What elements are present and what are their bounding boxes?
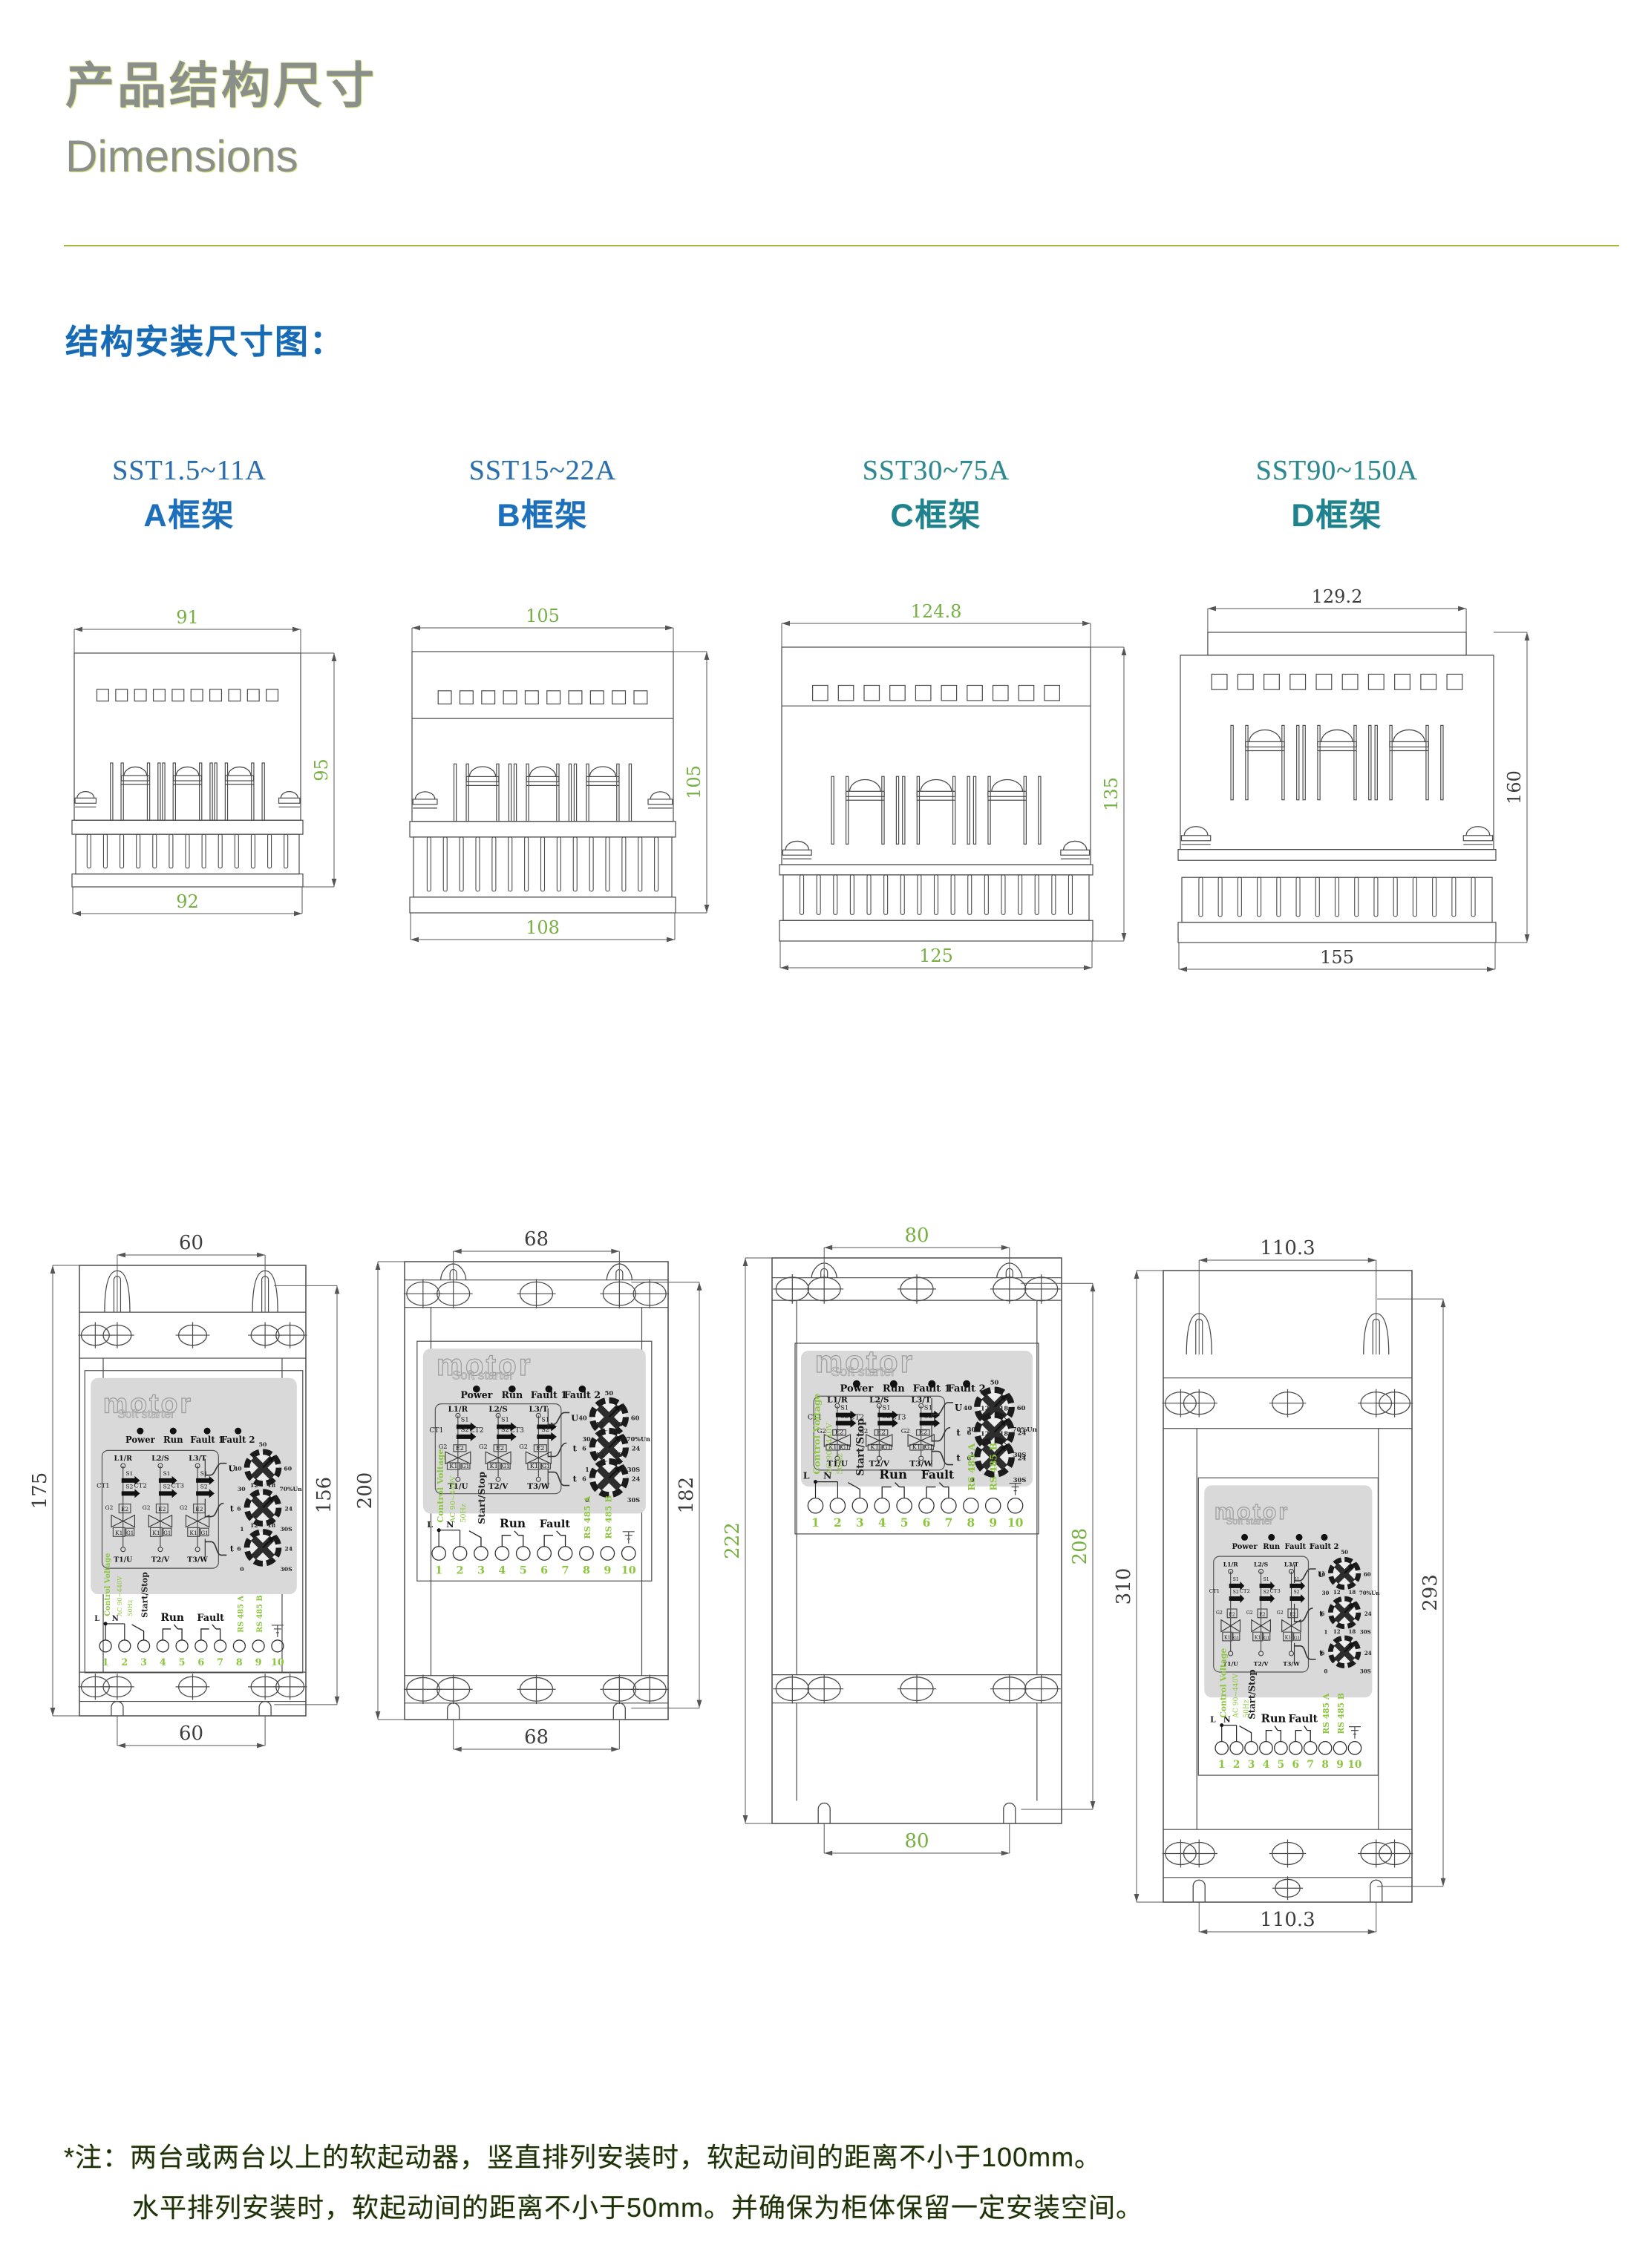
terminal-6 — [195, 1640, 207, 1652]
dimension-label: 105 — [684, 765, 705, 799]
svg-text:9: 9 — [989, 1515, 997, 1530]
svg-text:1: 1 — [585, 1466, 589, 1473]
svg-text:7: 7 — [562, 1564, 569, 1576]
dimension-label: 92 — [176, 891, 199, 912]
terminal-10 — [1007, 1498, 1022, 1513]
svg-text:T3/W: T3/W — [527, 1482, 549, 1491]
svg-text:18: 18 — [1349, 1589, 1356, 1596]
svg-text:S1: S1 — [882, 1404, 890, 1412]
svg-text:50: 50 — [1341, 1549, 1348, 1556]
svg-text:K1: K1 — [449, 1462, 457, 1469]
svg-text:8: 8 — [583, 1564, 590, 1576]
terminal-9 — [1333, 1742, 1346, 1754]
svg-text:T3/W: T3/W — [909, 1459, 933, 1468]
svg-text:40: 40 — [1318, 1571, 1326, 1578]
svg-text:E2: E2 — [121, 1506, 128, 1512]
svg-text:K1: K1 — [1255, 1636, 1261, 1641]
svg-text:3: 3 — [856, 1515, 864, 1530]
svg-text:50: 50 — [259, 1441, 267, 1448]
svg-text:30: 30 — [1322, 1590, 1330, 1596]
svg-text:Power: Power — [1232, 1543, 1258, 1551]
svg-text:G1: G1 — [502, 1463, 510, 1469]
svg-text:S1: S1 — [163, 1470, 171, 1477]
svg-text:Power: Power — [460, 1389, 492, 1400]
ground-icon — [623, 1532, 635, 1544]
terminal-2 — [1230, 1742, 1243, 1754]
svg-text:12: 12 — [250, 1482, 258, 1489]
svg-text:L3/T: L3/T — [529, 1405, 549, 1414]
svg-text:Control Voltage: Control Voltage — [1219, 1648, 1229, 1718]
svg-text:RS 485 A: RS 485 A — [237, 1596, 245, 1633]
svg-text:Run: Run — [500, 1517, 526, 1530]
terminal-5 — [176, 1640, 188, 1652]
svg-text:1: 1 — [435, 1564, 442, 1576]
dimension-label: 95 — [311, 758, 332, 781]
svg-text:E2: E2 — [496, 1444, 504, 1452]
terminal-5 — [517, 1547, 530, 1560]
svg-text:S1: S1 — [501, 1416, 509, 1423]
svg-text:Fault 2: Fault 2 — [221, 1435, 255, 1445]
svg-text:3: 3 — [477, 1564, 485, 1576]
svg-text:50: 50 — [605, 1389, 614, 1397]
svg-text:L: L — [1210, 1715, 1216, 1725]
svg-text:G1: G1 — [462, 1463, 470, 1469]
svg-text:30S: 30S — [280, 1526, 292, 1533]
svg-text:Fault: Fault — [197, 1613, 224, 1624]
svg-text:K1: K1 — [870, 1443, 879, 1450]
svg-text:40: 40 — [234, 1466, 242, 1472]
svg-text:L3/T: L3/T — [189, 1455, 206, 1463]
svg-text:18: 18 — [1349, 1628, 1356, 1635]
svg-text:40: 40 — [578, 1414, 587, 1421]
svg-text:CT2: CT2 — [470, 1426, 484, 1435]
svg-text:E2: E2 — [835, 1429, 844, 1436]
svg-text:30S: 30S — [627, 1466, 640, 1473]
svg-text:30: 30 — [238, 1486, 246, 1492]
svg-text:6: 6 — [582, 1475, 586, 1483]
svg-text:E2: E2 — [1289, 1612, 1295, 1617]
svg-text:G2: G2 — [180, 1504, 188, 1511]
svg-text:S1: S1 — [1264, 1577, 1269, 1582]
svg-text:6: 6 — [1321, 1650, 1324, 1656]
dimension-label: 80 — [904, 1225, 929, 1247]
svg-text:6: 6 — [923, 1515, 931, 1530]
svg-text:L: L — [803, 1470, 810, 1481]
svg-text:18: 18 — [614, 1420, 623, 1428]
svg-text:G1: G1 — [163, 1530, 171, 1536]
svg-text:2: 2 — [121, 1657, 128, 1668]
svg-text:CT3: CT3 — [1269, 1588, 1280, 1594]
svg-text:T2/V: T2/V — [869, 1459, 890, 1468]
svg-text:1: 1 — [1218, 1759, 1226, 1771]
svg-text:Soft starter: Soft starter — [831, 1364, 896, 1379]
svg-text:K1: K1 — [1285, 1636, 1292, 1641]
svg-text:E2: E2 — [919, 1429, 928, 1436]
svg-text:K1: K1 — [490, 1462, 498, 1469]
terminal-1 — [808, 1498, 823, 1513]
svg-text:S1: S1 — [924, 1404, 932, 1412]
frame-a-top-view-drawing: 919592 — [72, 607, 336, 916]
dimension-label: 156 — [313, 1477, 336, 1514]
led-power — [137, 1428, 143, 1435]
svg-text:1: 1 — [240, 1526, 243, 1533]
svg-text:T2/V: T2/V — [151, 1556, 170, 1564]
dimension-label: 80 — [904, 1830, 929, 1852]
svg-text:6: 6 — [197, 1657, 204, 1668]
terminal-1 — [1215, 1742, 1228, 1754]
svg-text:E2: E2 — [158, 1506, 166, 1512]
svg-text:2: 2 — [1233, 1759, 1240, 1771]
install-note-line-2: 水平排列安装时，软起动间的距离不小于50mm。并确保为柜体保留一定安装空间。 — [132, 2186, 1143, 2225]
svg-text:30: 30 — [582, 1435, 591, 1443]
terminal-6 — [1289, 1742, 1302, 1754]
svg-text:Fault 2: Fault 2 — [564, 1389, 601, 1400]
svg-text:5: 5 — [520, 1564, 527, 1576]
svg-text:S2: S2 — [1233, 1590, 1239, 1595]
dimension-label: 182 — [676, 1477, 698, 1514]
terminal-8 — [580, 1547, 593, 1560]
motor-logo: motorSoft starter — [1215, 1499, 1289, 1527]
svg-text:50Hz: 50Hz — [126, 1599, 134, 1616]
terminal-5 — [897, 1498, 912, 1513]
svg-text:24: 24 — [284, 1506, 292, 1512]
svg-text:G2: G2 — [901, 1427, 910, 1435]
svg-text:G1: G1 — [1294, 1636, 1300, 1641]
terminal-3 — [852, 1498, 867, 1513]
svg-text:S2: S2 — [163, 1483, 171, 1489]
svg-text:6: 6 — [540, 1564, 548, 1576]
svg-text:10: 10 — [621, 1564, 636, 1576]
svg-text:S2: S2 — [1293, 1590, 1299, 1595]
svg-text:9: 9 — [255, 1657, 262, 1668]
svg-text:60: 60 — [284, 1466, 292, 1472]
svg-text:CT3: CT3 — [171, 1482, 185, 1489]
svg-text:30S: 30S — [1013, 1476, 1027, 1484]
terminal-7 — [215, 1640, 226, 1652]
svg-text:2: 2 — [834, 1515, 842, 1530]
led-fault-1 — [204, 1428, 211, 1435]
svg-text:12: 12 — [595, 1451, 604, 1458]
svg-text:60: 60 — [631, 1414, 640, 1421]
svg-text:Start/Stop: Start/Stop — [140, 1572, 150, 1618]
svg-text:10: 10 — [1347, 1759, 1361, 1771]
dimension-label: 110.3 — [1260, 1237, 1315, 1259]
svg-text:t: t — [230, 1544, 234, 1553]
svg-text:G2: G2 — [1277, 1610, 1284, 1616]
svg-text:7: 7 — [217, 1657, 223, 1668]
svg-text:9: 9 — [604, 1564, 611, 1576]
svg-text:0: 0 — [240, 1566, 243, 1573]
terminal-6 — [537, 1547, 551, 1560]
svg-text:30S: 30S — [1360, 1668, 1371, 1675]
svg-text:Control Voltage: Control Voltage — [435, 1449, 445, 1522]
svg-text:12: 12 — [981, 1429, 990, 1437]
svg-text:8: 8 — [967, 1515, 975, 1530]
svg-text:RS 485 B: RS 485 B — [1336, 1693, 1346, 1734]
svg-text:CT1: CT1 — [97, 1482, 110, 1489]
svg-text:6: 6 — [1292, 1759, 1300, 1771]
dimension-label: 200 — [354, 1472, 376, 1510]
led-fault-2 — [1321, 1534, 1327, 1541]
svg-text:Run: Run — [879, 1468, 907, 1482]
svg-text:S2: S2 — [200, 1483, 208, 1489]
svg-text:4: 4 — [878, 1515, 886, 1530]
dimension-label: 175 — [29, 1472, 51, 1510]
svg-text:24: 24 — [632, 1475, 641, 1483]
svg-text:5: 5 — [900, 1515, 909, 1530]
terminal-5 — [1275, 1742, 1287, 1754]
terminal-2 — [453, 1547, 466, 1560]
svg-text:RS 485 B: RS 485 B — [256, 1595, 264, 1633]
terminal-3 — [1245, 1742, 1258, 1754]
svg-text:CT3: CT3 — [510, 1426, 524, 1435]
svg-text:6: 6 — [237, 1545, 241, 1552]
svg-text:30S: 30S — [1360, 1629, 1371, 1636]
terminal-2 — [830, 1498, 845, 1513]
svg-text:G1: G1 — [1264, 1636, 1269, 1641]
terminal-3 — [474, 1547, 488, 1560]
svg-text:12: 12 — [981, 1404, 990, 1412]
svg-text:CT1: CT1 — [1209, 1588, 1220, 1594]
svg-text:2: 2 — [457, 1564, 464, 1576]
svg-text:S2: S2 — [501, 1426, 509, 1433]
svg-text:Fault 1: Fault 1 — [190, 1435, 224, 1445]
svg-text:6: 6 — [1321, 1610, 1324, 1617]
svg-text:T3/W: T3/W — [1283, 1660, 1300, 1667]
svg-text:Soft starter: Soft starter — [452, 1368, 514, 1382]
frame-b-top-view-drawing: 105105108 — [410, 606, 709, 942]
svg-text:E2: E2 — [1259, 1612, 1265, 1617]
svg-text:60: 60 — [1364, 1571, 1371, 1578]
svg-text:Start/Stop: Start/Stop — [476, 1472, 487, 1524]
svg-text:RS 485 B: RS 485 B — [603, 1495, 613, 1539]
svg-text:Control Voltage: Control Voltage — [104, 1553, 112, 1616]
svg-text:T2/V: T2/V — [488, 1482, 509, 1491]
svg-text:K1: K1 — [152, 1530, 160, 1536]
svg-text:Power: Power — [125, 1435, 156, 1445]
svg-text:Start/Stop: Start/Stop — [854, 1418, 866, 1475]
svg-text:G2: G2 — [105, 1504, 114, 1511]
svg-text:G1: G1 — [126, 1530, 134, 1536]
terminal-9 — [986, 1498, 1001, 1513]
svg-text:K1: K1 — [530, 1462, 538, 1469]
svg-text:t: t — [230, 1504, 234, 1514]
svg-text:40: 40 — [964, 1404, 972, 1412]
svg-text:12: 12 — [250, 1522, 258, 1529]
svg-text:9: 9 — [1336, 1759, 1344, 1771]
svg-text:24: 24 — [1018, 1429, 1027, 1437]
svg-text:G1: G1 — [200, 1530, 208, 1536]
svg-text:Fault 1: Fault 1 — [531, 1389, 567, 1400]
terminal-9 — [252, 1640, 264, 1652]
svg-text:Fault 2: Fault 2 — [947, 1383, 985, 1394]
svg-text:30S: 30S — [627, 1496, 640, 1504]
svg-text:G2: G2 — [1216, 1610, 1223, 1616]
motor-logo: motorSoft starter — [103, 1387, 193, 1420]
install-note-line-1: *注：两台或两台以上的软起动器，竖直排列安装时，软起动间的距离不小于100mm。 — [64, 2136, 1102, 2174]
svg-text:E2: E2 — [195, 1506, 203, 1512]
svg-text:70%Un: 70%Un — [1359, 1590, 1380, 1596]
terminal-4 — [1260, 1742, 1272, 1754]
svg-text:18: 18 — [614, 1451, 623, 1458]
svg-text:7: 7 — [945, 1515, 953, 1530]
svg-text:AC 90~440V: AC 90~440V — [1233, 1674, 1240, 1719]
svg-text:Start/Stop: Start/Stop — [1247, 1669, 1258, 1719]
frame-d-top-view-drawing: 129.2160155 — [1178, 586, 1529, 971]
terminal-6 — [919, 1498, 934, 1513]
svg-text:Power: Power — [840, 1383, 875, 1394]
svg-text:S1: S1 — [125, 1470, 133, 1477]
svg-text:Run: Run — [163, 1435, 183, 1445]
svg-text:RS 485 A: RS 485 A — [582, 1496, 592, 1539]
terminal-10 — [622, 1547, 635, 1560]
svg-text:3: 3 — [140, 1657, 147, 1668]
dimension-label: 91 — [176, 607, 199, 628]
svg-text:Run: Run — [501, 1389, 523, 1400]
terminal-7 — [1304, 1742, 1316, 1754]
dimension-label: 125 — [919, 945, 953, 966]
svg-text:U: U — [571, 1412, 578, 1423]
svg-text:t: t — [956, 1453, 961, 1464]
dimension-label: 60 — [179, 1232, 203, 1254]
dimension-label: 110.3 — [1260, 1909, 1315, 1931]
svg-text:L1/R: L1/R — [114, 1455, 133, 1463]
svg-text:S1: S1 — [840, 1404, 849, 1412]
dimension-label: 135 — [1101, 777, 1122, 811]
svg-text:G1: G1 — [1233, 1636, 1239, 1641]
svg-text:Soft starter: Soft starter — [117, 1409, 174, 1421]
svg-text:8: 8 — [1321, 1759, 1329, 1771]
svg-text:L2/S: L2/S — [488, 1405, 507, 1414]
frame-c-top-view-drawing: 124.8135125 — [779, 601, 1126, 970]
motor-logo: motorSoft starter — [815, 1344, 915, 1379]
svg-text:Soft starter: Soft starter — [1226, 1515, 1273, 1527]
svg-text:L2/S: L2/S — [1254, 1561, 1269, 1567]
svg-text:RS 485 B: RS 485 B — [988, 1443, 999, 1491]
dimension-label: 293 — [1419, 1574, 1442, 1611]
svg-text:0: 0 — [1324, 1668, 1327, 1675]
dimension-label: 68 — [524, 1726, 549, 1748]
svg-text:L: L — [94, 1615, 99, 1623]
svg-text:S2: S2 — [840, 1412, 849, 1420]
svg-text:70%Un: 70%Un — [279, 1486, 302, 1492]
terminal-4 — [875, 1498, 889, 1513]
dimension-label: 105 — [526, 606, 560, 626]
svg-text:1: 1 — [811, 1515, 820, 1530]
svg-text:L: L — [427, 1519, 433, 1530]
svg-text:RS 485 A: RS 485 A — [1321, 1693, 1331, 1734]
led-run — [170, 1428, 177, 1435]
svg-text:E2: E2 — [877, 1429, 886, 1436]
dimension-label: 124.8 — [911, 601, 962, 622]
led-run — [1268, 1534, 1275, 1541]
svg-text:24: 24 — [1364, 1610, 1372, 1617]
dimension-label: 160 — [1504, 770, 1525, 804]
terminal-4 — [495, 1547, 509, 1560]
frame-b-mounting-view-drawing: motorSoft starterPowerRunFault 1Fault 2L… — [354, 1228, 702, 1751]
svg-text:Fault: Fault — [921, 1468, 955, 1482]
svg-text:50Hz: 50Hz — [460, 1504, 468, 1523]
svg-text:AC 90~440V: AC 90~440V — [116, 1576, 123, 1617]
svg-text:5: 5 — [1278, 1759, 1285, 1771]
svg-text:24: 24 — [632, 1445, 641, 1452]
svg-text:E2: E2 — [1229, 1612, 1235, 1617]
svg-text:10: 10 — [1007, 1515, 1024, 1530]
svg-text:50: 50 — [990, 1379, 999, 1386]
svg-text:24: 24 — [284, 1545, 292, 1552]
terminal-7 — [558, 1547, 572, 1560]
svg-text:S2: S2 — [882, 1412, 890, 1420]
svg-text:12: 12 — [1333, 1628, 1341, 1635]
svg-text:4: 4 — [498, 1564, 506, 1576]
svg-text:T2/V: T2/V — [1254, 1660, 1269, 1667]
svg-text:Fault: Fault — [1289, 1714, 1318, 1725]
svg-text:7: 7 — [1307, 1759, 1314, 1771]
svg-text:18: 18 — [267, 1482, 275, 1489]
svg-text:Fault 2: Fault 2 — [1310, 1543, 1338, 1551]
svg-text:S1: S1 — [200, 1470, 208, 1477]
terminal-8 — [964, 1498, 978, 1513]
terminal-8 — [233, 1640, 245, 1652]
svg-text:18: 18 — [999, 1404, 1008, 1412]
svg-text:Fault 1: Fault 1 — [913, 1383, 951, 1394]
ground-icon — [1349, 1727, 1361, 1739]
svg-text:10: 10 — [271, 1657, 284, 1668]
svg-text:L1/R: L1/R — [1223, 1561, 1239, 1567]
svg-text:S1: S1 — [1233, 1577, 1239, 1582]
dimension-label: 68 — [524, 1228, 549, 1251]
svg-text:1: 1 — [1324, 1629, 1327, 1636]
svg-text:50Hz: 50Hz — [836, 1453, 845, 1475]
page: 产品结构尺寸 Dimensions 结构安装尺寸图： SST1.5~11A A框… — [0, 0, 1628, 2268]
svg-text:L1/R: L1/R — [448, 1405, 468, 1414]
svg-text:G2: G2 — [519, 1443, 528, 1450]
svg-text:S2: S2 — [461, 1426, 469, 1433]
svg-text:S1: S1 — [461, 1416, 469, 1423]
frame-c-mounting-view-drawing: motorSoft starterPowerRunFault 1Fault 2L… — [722, 1225, 1095, 1855]
svg-text:Fault: Fault — [540, 1518, 571, 1530]
svg-text:L3/T: L3/T — [1284, 1561, 1299, 1567]
svg-text:18: 18 — [999, 1429, 1008, 1437]
terminal-1 — [432, 1547, 445, 1560]
dimension-label: 155 — [1320, 947, 1354, 968]
svg-text:AC 90~440V: AC 90~440V — [449, 1475, 457, 1524]
svg-text:12: 12 — [1333, 1589, 1341, 1596]
svg-text:K1: K1 — [1224, 1636, 1231, 1641]
svg-text:CT2: CT2 — [134, 1482, 147, 1489]
svg-text:Control Voltage: Control Voltage — [811, 1393, 823, 1474]
svg-text:70%Un: 70%Un — [627, 1435, 650, 1443]
svg-text:60: 60 — [1017, 1404, 1026, 1412]
svg-text:t: t — [573, 1474, 578, 1484]
motor-logo: motorSoft starter — [437, 1348, 533, 1383]
svg-text:CT3: CT3 — [892, 1414, 906, 1422]
svg-text:5: 5 — [179, 1657, 186, 1668]
svg-text:Run: Run — [1261, 1713, 1287, 1725]
svg-text:t: t — [956, 1428, 961, 1438]
terminal-2 — [119, 1640, 131, 1652]
dimension-label: 222 — [722, 1522, 744, 1559]
frame-d-mounting-view-drawing: motorSoft starterPowerRunFault 1Fault 2L… — [1113, 1237, 1445, 1934]
terminal-1 — [99, 1640, 111, 1652]
terminal-3 — [138, 1640, 150, 1652]
svg-text:G1: G1 — [883, 1443, 891, 1450]
svg-text:U: U — [955, 1403, 962, 1413]
svg-text:G2: G2 — [143, 1504, 151, 1511]
svg-text:8: 8 — [236, 1657, 243, 1668]
svg-text:6: 6 — [237, 1506, 241, 1512]
svg-text:AC 90~440V: AC 90~440V — [826, 1423, 834, 1475]
